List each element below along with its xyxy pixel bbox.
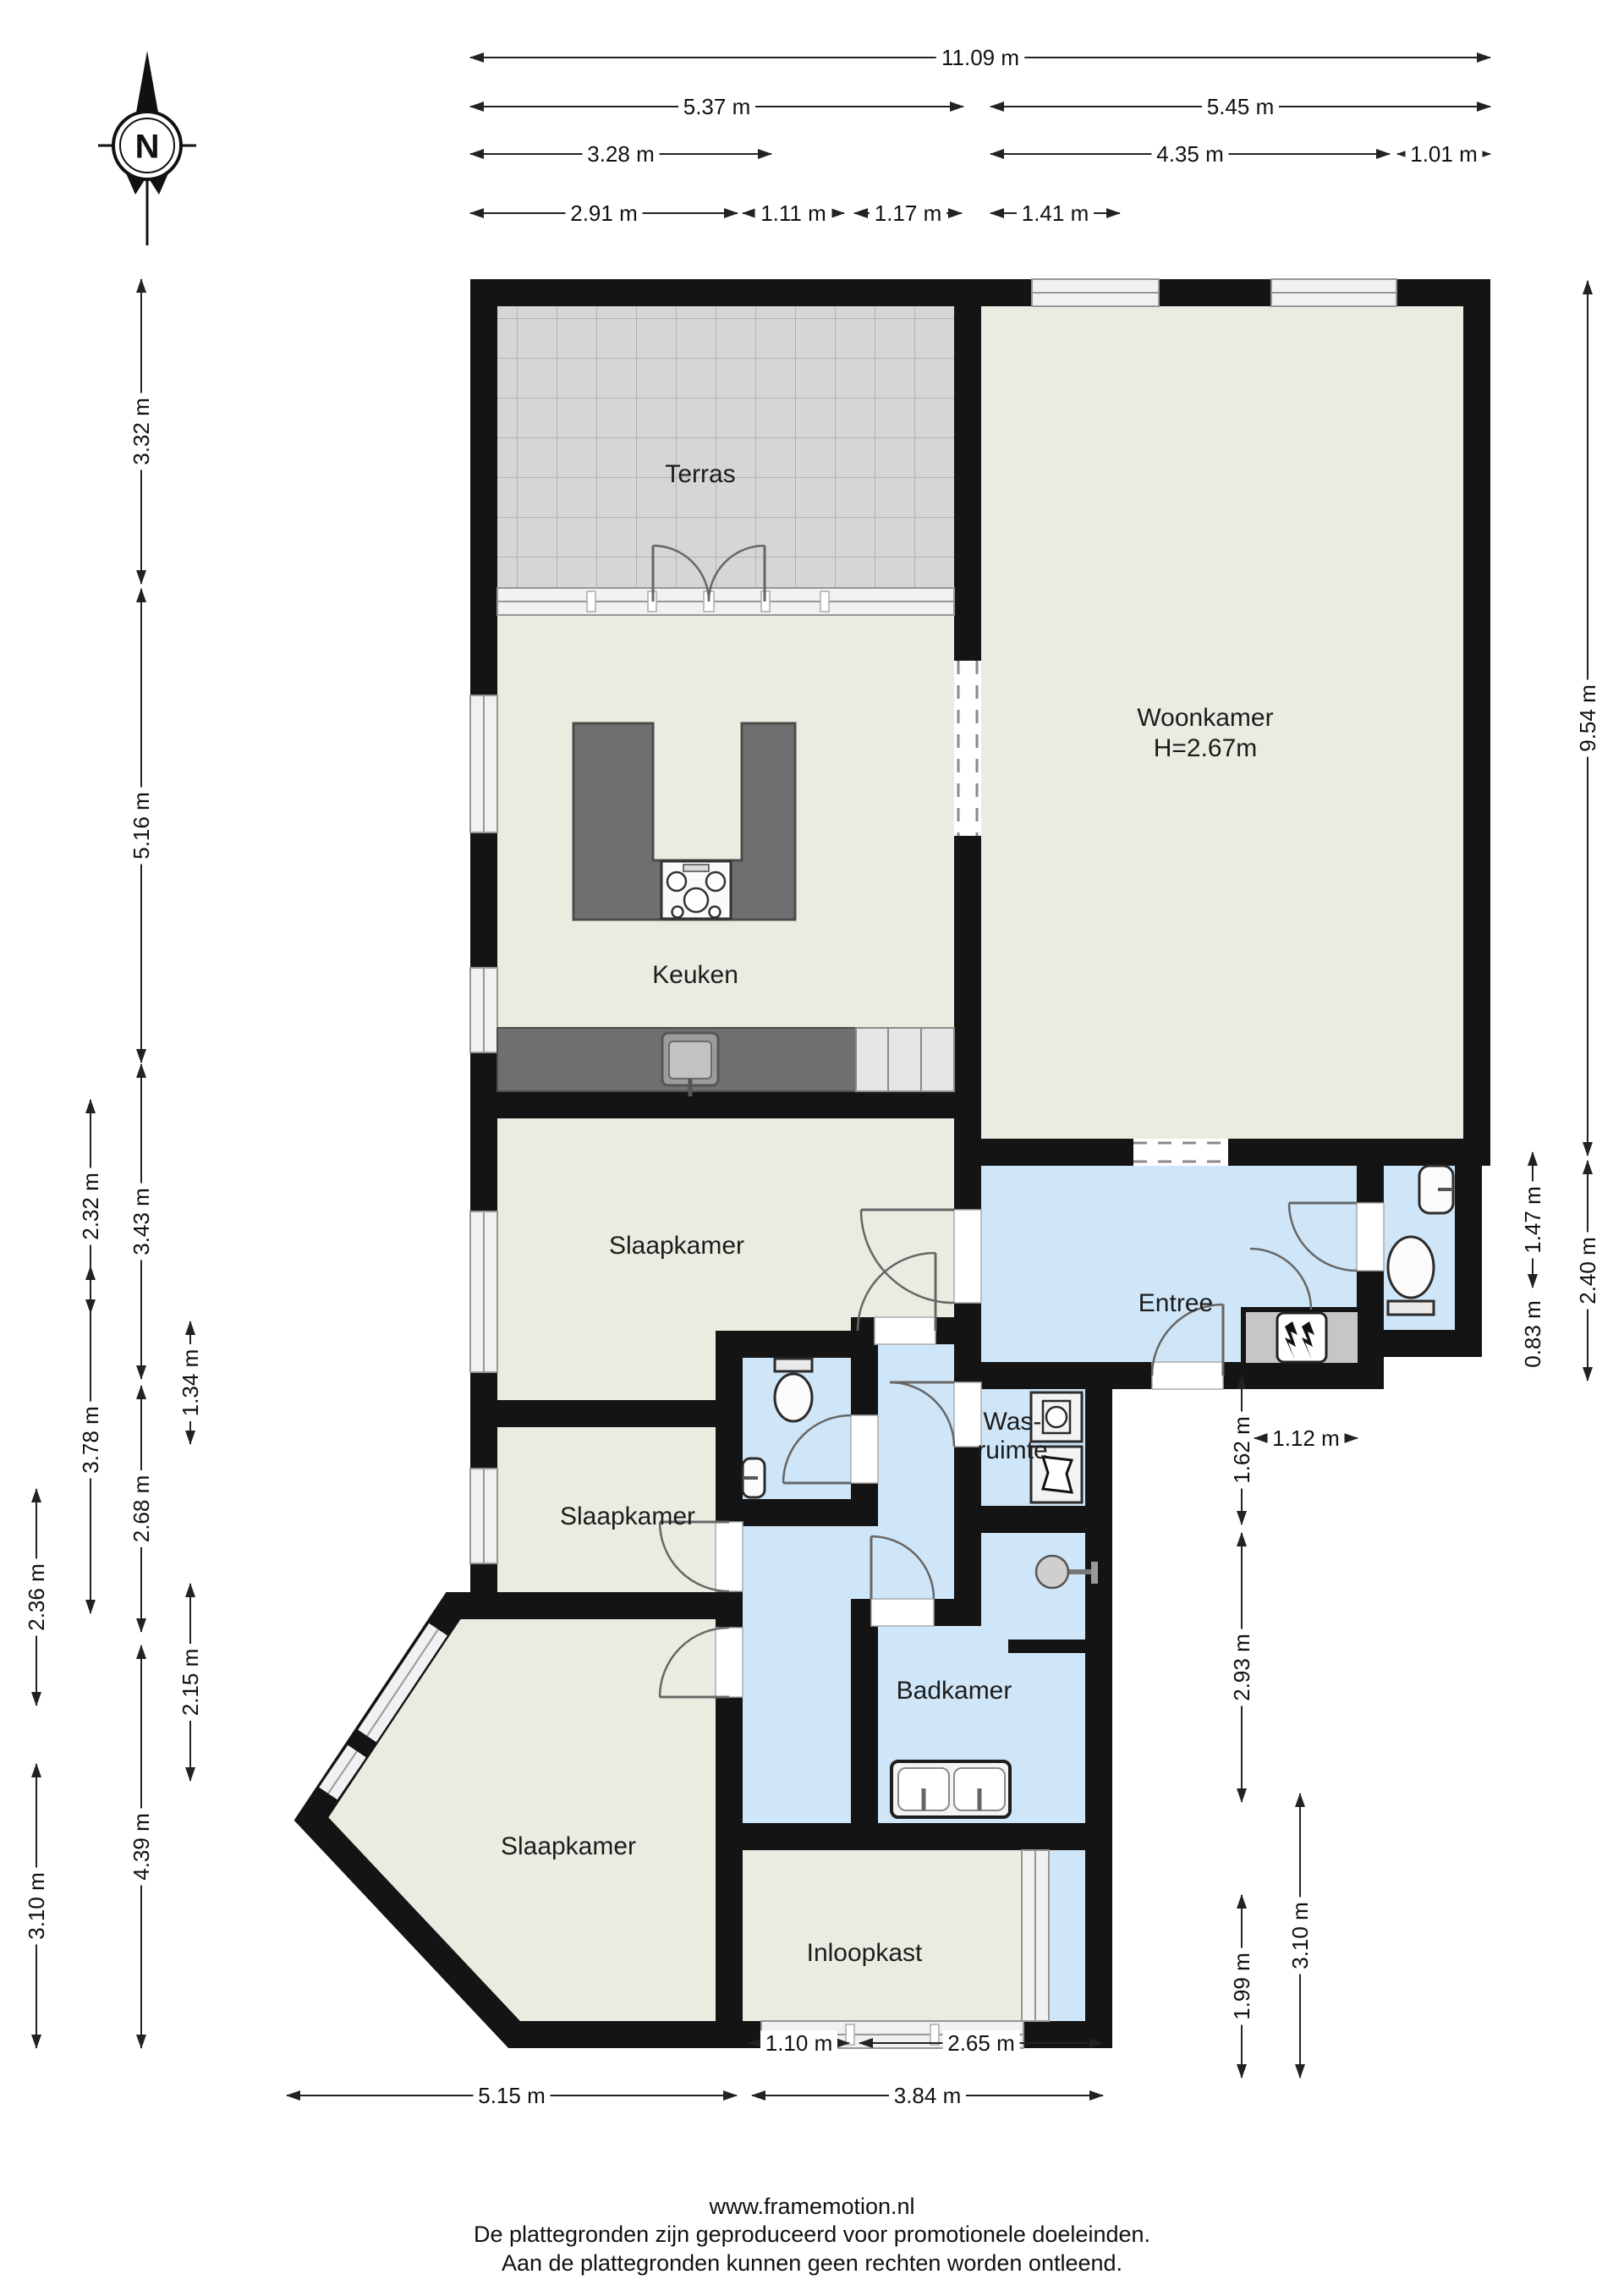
compass-label: N	[135, 128, 160, 165]
room-label: Badkamer	[897, 1677, 1012, 1705]
room-slaapkamer-3	[311, 1606, 729, 2035]
north-compass-icon: N	[98, 51, 196, 245]
dimension: 5.16 m	[129, 589, 154, 1063]
dimension: 2.91 m	[470, 200, 738, 226]
room-label: Inloopkast	[807, 1939, 923, 1967]
dimension: 3.84 m	[752, 2083, 1103, 2108]
dimension: 4.39 m	[129, 1645, 154, 2048]
wc-door	[851, 1415, 878, 1483]
room-label: Was-	[984, 1408, 1042, 1436]
slaapkamer3-door	[716, 1628, 743, 1697]
dimension-label: 1.12 m	[1272, 1425, 1340, 1451]
dimension-label: 2.32 m	[78, 1173, 103, 1240]
dimension: 1.17 m	[854, 200, 962, 226]
room-label: Slaapkamer	[609, 1232, 744, 1260]
dimension: 5.37 m	[470, 94, 963, 119]
dimension: 3.32 m	[129, 279, 154, 584]
dimension: 1.10 m	[749, 2030, 849, 2056]
dimension: 3.43 m	[129, 1064, 154, 1379]
dimension: 3.28 m	[470, 141, 771, 167]
footer-website: www.framemotion.nl	[0, 2193, 1624, 2221]
dimension-label: 3.43 m	[129, 1188, 154, 1255]
room-label: ruimte	[977, 1436, 1047, 1464]
dimension: 3.10 m	[24, 1764, 49, 2048]
stove-icon	[661, 861, 731, 919]
room-label: Entree	[1138, 1289, 1213, 1317]
dimension-label: 1.41 m	[1022, 200, 1089, 226]
floorplan-svg: N TerrasKeukenWoonkamerH=2.67mSlaapkamer…	[0, 0, 1624, 2296]
dimension: 2.40 m	[1575, 1161, 1600, 1381]
room-label: Woonkamer	[1137, 704, 1273, 732]
dimension-label: 3.10 m	[24, 1872, 49, 1940]
dimension-label: 2.68 m	[129, 1475, 154, 1543]
dimension: 1.47 m	[1520, 1152, 1545, 1288]
dimension: 3.78 m	[78, 1266, 103, 1613]
dimension-label: 4.39 m	[129, 1813, 154, 1881]
dimension-label: 1.17 m	[875, 200, 942, 226]
room-inloopkast	[729, 1837, 1035, 2035]
footer-disclaimer-2: Aan de plattegronden kunnen geen rechten…	[0, 2249, 1624, 2277]
dimension: 2.36 m	[24, 1489, 49, 1706]
footer-disclaimer-1: De plattegronden zijn geproduceerd voor …	[0, 2221, 1624, 2249]
dimension: 1.01 m	[1397, 141, 1490, 167]
room-terras	[484, 293, 968, 601]
dimension-label: 2.65 m	[947, 2030, 1015, 2056]
dimension-label: 1.47 m	[1520, 1186, 1545, 1254]
dimension-label: 3.28 m	[587, 141, 655, 167]
dimension-label: 11.09 m	[941, 45, 1019, 70]
dimension-label: 3.84 m	[894, 2083, 962, 2108]
dimension-label: 9.54 m	[1575, 684, 1600, 752]
toilet-icon	[1388, 1237, 1434, 1298]
shower-partition	[1008, 1640, 1099, 1653]
dimension-label: 1.34 m	[178, 1349, 203, 1417]
badkamer-door	[871, 1599, 934, 1626]
vanity-double-sink	[892, 1761, 1010, 1817]
dimension-label: 0.83 m	[1520, 1300, 1545, 1368]
dimension-label: 2.93 m	[1229, 1634, 1254, 1701]
dimension: 3.10 m	[1287, 1793, 1313, 2078]
front-door	[1152, 1362, 1223, 1389]
dimension: 1.62 m	[1229, 1376, 1254, 1524]
dimension: 2.68 m	[129, 1386, 154, 1632]
dimension: 11.09 m	[470, 45, 1490, 70]
dimension-label: 5.45 m	[1207, 94, 1275, 119]
dimension: 0.83 m	[1520, 1296, 1545, 1373]
dimension: 1.11 m	[743, 200, 844, 226]
dimension-label: 3.10 m	[1287, 1902, 1313, 1969]
slaapkamer2-door	[716, 1522, 743, 1591]
dimension: 5.15 m	[287, 2083, 737, 2108]
dimension-label: 5.16 m	[129, 792, 154, 860]
toilet-door	[1357, 1203, 1384, 1271]
slaapkamer1-door	[875, 1317, 935, 1344]
dimension-label: 3.78 m	[78, 1406, 103, 1474]
room-label: H=2.67m	[1154, 734, 1258, 762]
kitchen-cabinets	[856, 1028, 954, 1091]
dimension-label: 1.10 m	[765, 2030, 833, 2056]
dimension-label: 4.35 m	[1156, 141, 1224, 167]
dimension-label: 1.01 m	[1410, 141, 1478, 167]
dimension-label: 3.32 m	[129, 398, 154, 465]
dimension-label: 2.15 m	[178, 1649, 203, 1717]
dimension-label: 5.37 m	[683, 94, 751, 119]
dimension: 1.99 m	[1229, 1895, 1254, 2078]
room-label: Slaapkamer	[501, 1832, 636, 1860]
footer: www.framemotion.nl De plattegronden zijn…	[0, 2193, 1624, 2277]
room-label: Terras	[665, 460, 735, 488]
dimension-label: 2.36 m	[24, 1563, 49, 1631]
dimension: 2.15 m	[178, 1584, 203, 1781]
dimension-label: 1.62 m	[1229, 1416, 1254, 1484]
dimension: 9.54 m	[1575, 281, 1600, 1156]
dimension: 5.45 m	[990, 94, 1490, 119]
dimension-label: 2.91 m	[570, 200, 638, 226]
dimension: 1.41 m	[990, 200, 1120, 226]
dimension: 4.35 m	[990, 141, 1390, 167]
room-label: Keuken	[652, 961, 738, 989]
dimension-label: 5.15 m	[478, 2083, 546, 2108]
floorplan-page: { "compass": { "label": "N" }, "colors":…	[0, 0, 1624, 2296]
slaapkamer1-entree-door	[954, 1210, 981, 1303]
dimension: 2.93 m	[1229, 1533, 1254, 1802]
dimension: 1.12 m	[1254, 1425, 1358, 1451]
dimension-label: 1.99 m	[1229, 1953, 1254, 2020]
room-label: Slaapkamer	[560, 1502, 695, 1530]
toilet-icon	[775, 1359, 812, 1371]
dimension: 1.34 m	[178, 1321, 203, 1444]
dimension-label: 1.11 m	[760, 200, 826, 226]
dimension-label: 2.40 m	[1575, 1237, 1600, 1305]
